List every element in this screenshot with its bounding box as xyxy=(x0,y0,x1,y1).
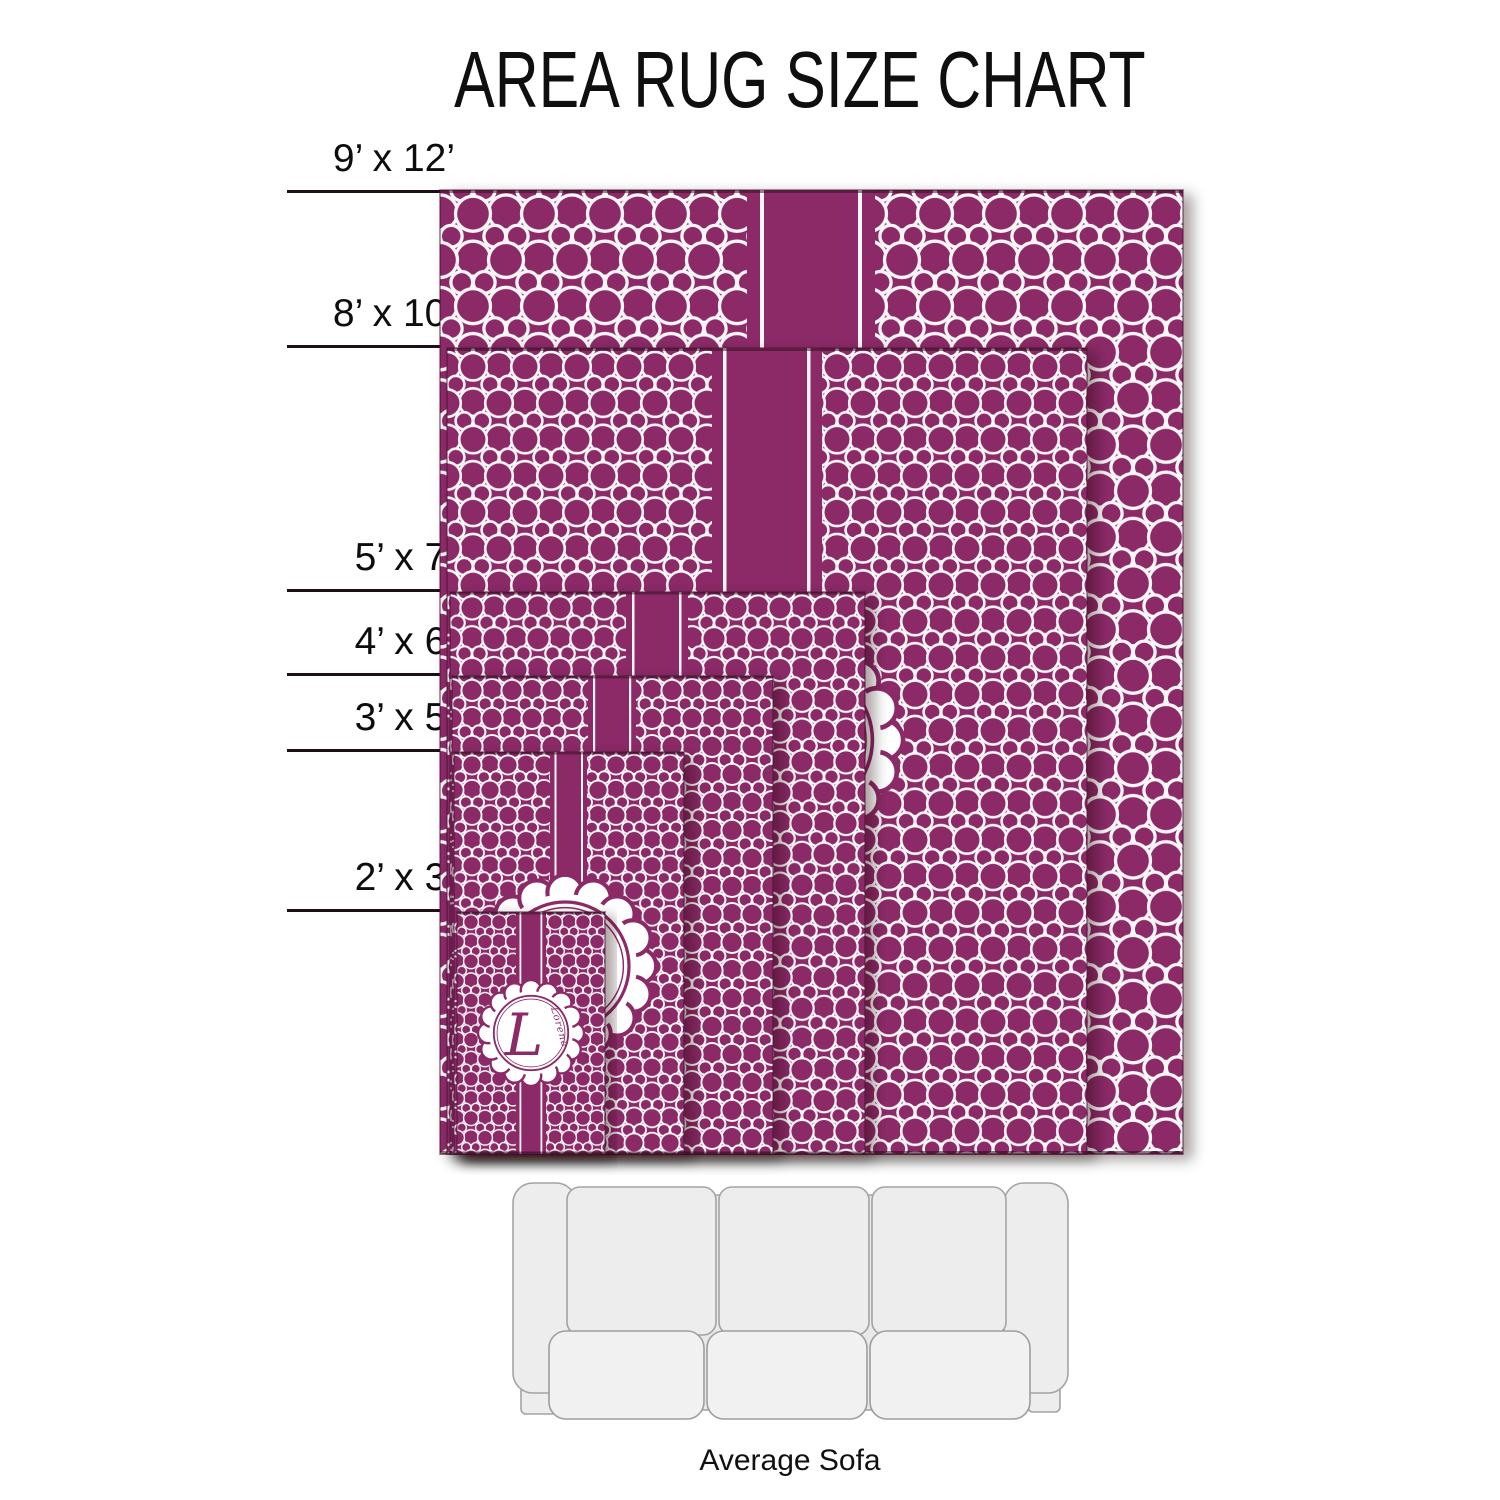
sofa-seat-cushion xyxy=(870,1331,1030,1419)
rug-size-chart: AREA RUG SIZE CHART 9’ x 12’ 8’ x 10’ 5’… xyxy=(0,0,1500,1500)
rug-2x3: L Lorena xyxy=(457,912,605,1155)
sofa-back-cushion xyxy=(567,1187,716,1335)
chart-graphic: L Lorena xyxy=(0,0,1500,1500)
monogram-letter: L xyxy=(504,1001,544,1069)
sofa-caption: Average Sofa xyxy=(640,1444,940,1478)
sofa-illustration xyxy=(513,1183,1068,1419)
sofa-back-cushion xyxy=(872,1187,1006,1335)
sofa-seat-cushion xyxy=(549,1331,704,1419)
sofa-back-cushion xyxy=(719,1187,869,1335)
sofa-seat-cushion xyxy=(707,1331,867,1419)
